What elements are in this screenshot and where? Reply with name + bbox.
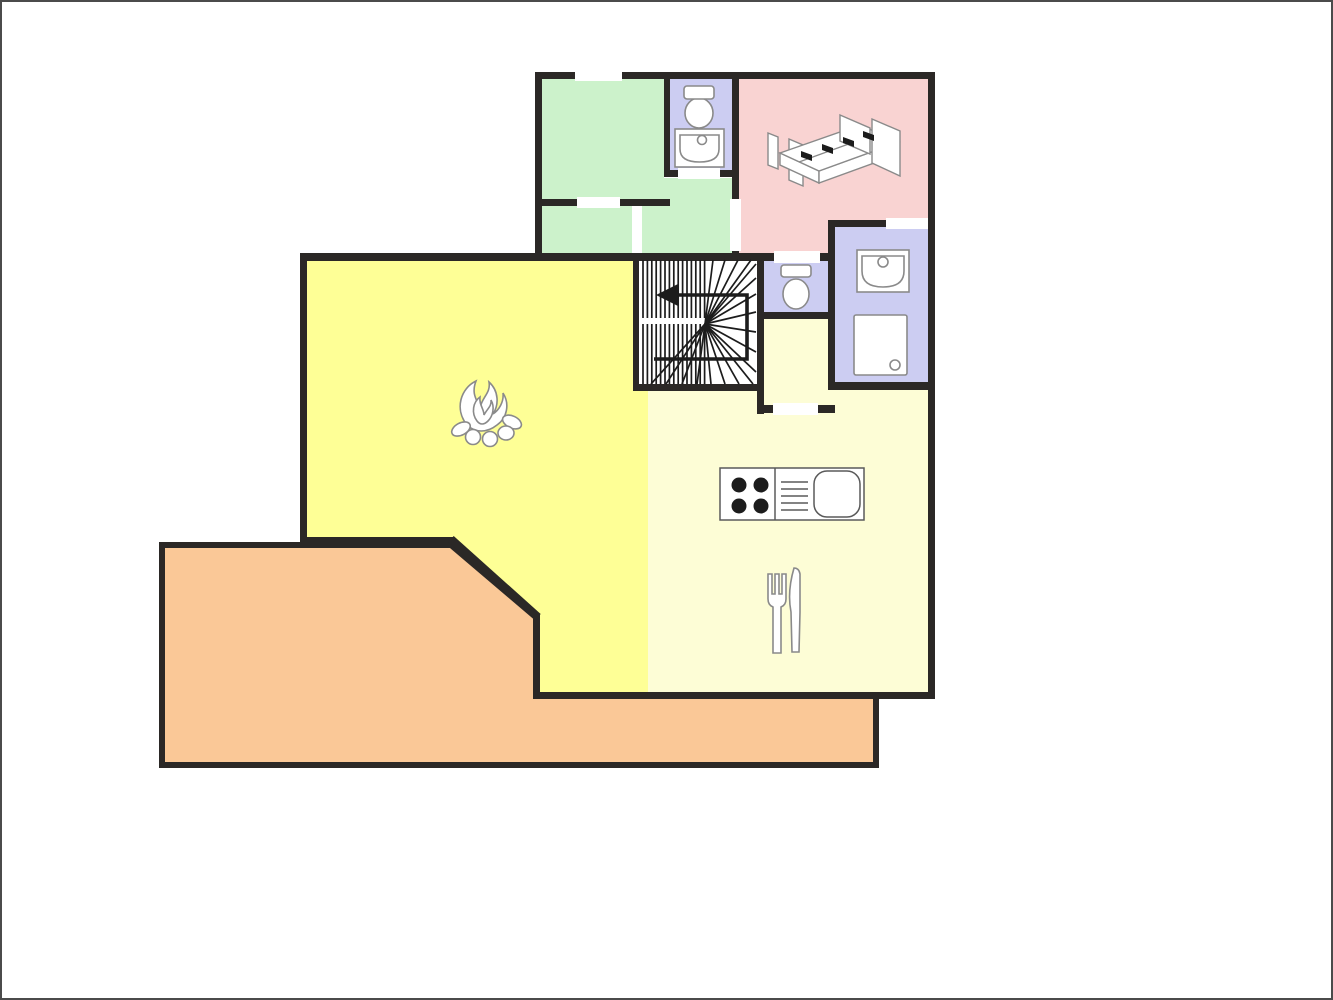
door-opening [774, 251, 820, 263]
wall-segment [633, 253, 639, 391]
door-opening [886, 218, 928, 229]
green-hall-right-floor [642, 178, 732, 254]
floor-plan [2, 2, 1333, 1000]
fire-log [483, 432, 498, 447]
wall-segment [757, 312, 835, 319]
knife-outline [790, 568, 800, 652]
kitchen-counter [720, 468, 864, 520]
wall-segment [664, 72, 670, 177]
door-opening [577, 197, 620, 208]
toilet-bowl [783, 279, 809, 309]
toilet-icon [684, 86, 714, 128]
washbasin-icon [857, 250, 909, 292]
fire-log [498, 426, 514, 440]
toilet-bowl [685, 98, 713, 128]
toilet-tank [684, 86, 714, 99]
door-opening [773, 403, 818, 415]
washbasin-icon [675, 129, 724, 167]
green-hall-left-floor [542, 206, 632, 254]
wall-segment [300, 537, 455, 544]
wall-segment [300, 253, 835, 261]
knife-icon [790, 568, 800, 652]
toilet-icon [781, 265, 811, 309]
burner [754, 499, 769, 514]
wall-segment [533, 614, 540, 699]
door-opening [730, 199, 741, 251]
burner [732, 478, 747, 493]
washbasin-faucet [698, 136, 707, 145]
stair-treads-lower [643, 324, 705, 384]
wall-segment [535, 72, 542, 261]
wall-segment [300, 253, 307, 544]
wall-segment [533, 692, 935, 699]
washbasin-faucet [878, 257, 888, 267]
shower-icon [854, 315, 907, 375]
bed-footboard-plank [768, 133, 778, 169]
kitchen-sink-icon [814, 471, 860, 517]
burner [732, 499, 747, 514]
floor-plan-canvas [0, 0, 1333, 1000]
wall-segment [828, 382, 935, 390]
wall-segment [828, 220, 835, 390]
burner [754, 478, 769, 493]
fire-log [466, 430, 481, 445]
shower-drain [890, 360, 900, 370]
wall-segment [633, 384, 764, 391]
door-opening [575, 70, 622, 81]
toilet-tank [781, 265, 811, 277]
door-opening [678, 168, 720, 179]
